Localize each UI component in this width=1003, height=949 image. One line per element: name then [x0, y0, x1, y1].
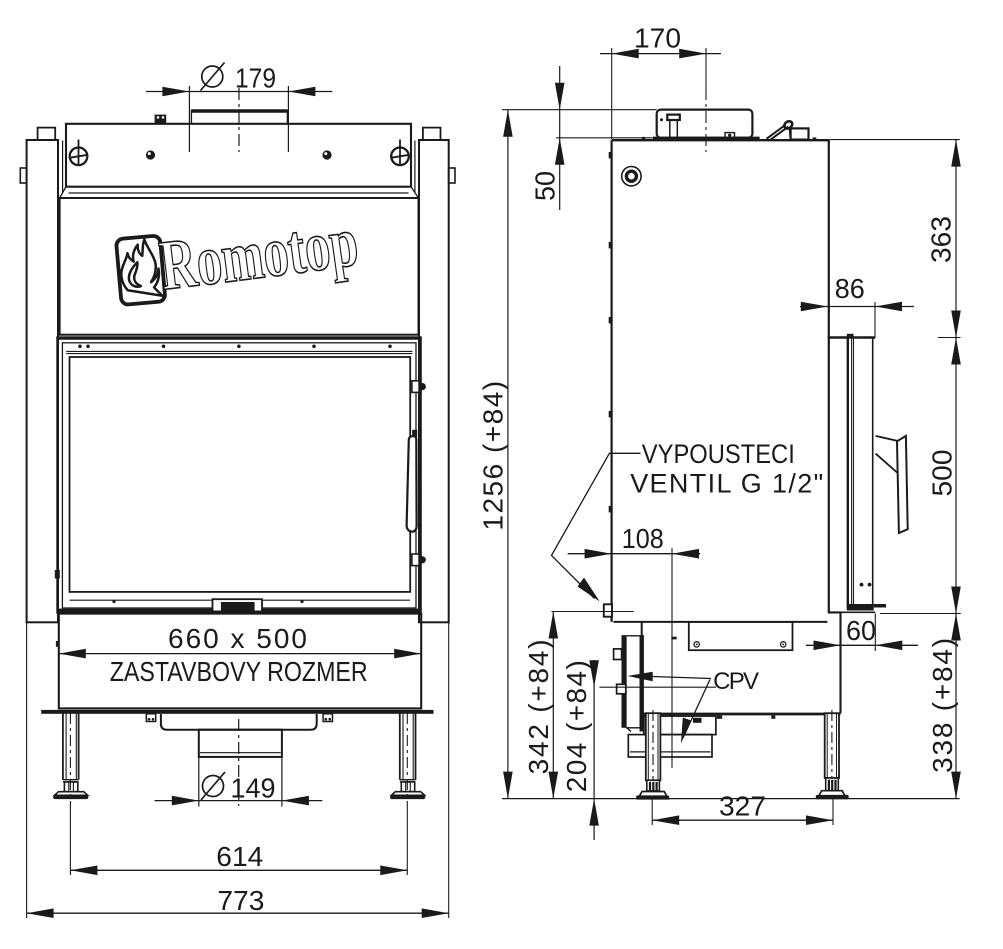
svg-text:500: 500	[927, 450, 958, 497]
svg-text:60: 60	[846, 615, 876, 646]
svg-text:VENTIL G 1/2": VENTIL G 1/2"	[630, 468, 824, 498]
svg-text:VYPOUSTECI: VYPOUSTECI	[642, 439, 795, 469]
svg-text:327: 327	[719, 791, 766, 822]
svg-text:179: 179	[235, 63, 276, 94]
svg-text:CPV: CPV	[713, 668, 759, 695]
svg-text:363: 363	[926, 216, 957, 263]
svg-text:773: 773	[217, 885, 264, 916]
svg-text:614: 614	[216, 841, 263, 872]
svg-text:1256 (+84): 1256 (+84)	[478, 379, 509, 530]
svg-text:342 (+84): 342 (+84)	[523, 638, 554, 775]
svg-text:170: 170	[634, 23, 681, 54]
svg-text:50: 50	[530, 171, 561, 201]
svg-text:149: 149	[231, 773, 276, 804]
svg-text:204 (+84): 204 (+84)	[561, 659, 592, 792]
svg-text:338 (+84): 338 (+84)	[927, 636, 958, 773]
svg-text:660 x 500: 660 x 500	[168, 623, 309, 654]
svg-text:86: 86	[835, 273, 865, 304]
svg-text:ZASTAVBOVY ROZMER: ZASTAVBOVY ROZMER	[110, 656, 368, 687]
svg-text:108: 108	[622, 523, 664, 554]
